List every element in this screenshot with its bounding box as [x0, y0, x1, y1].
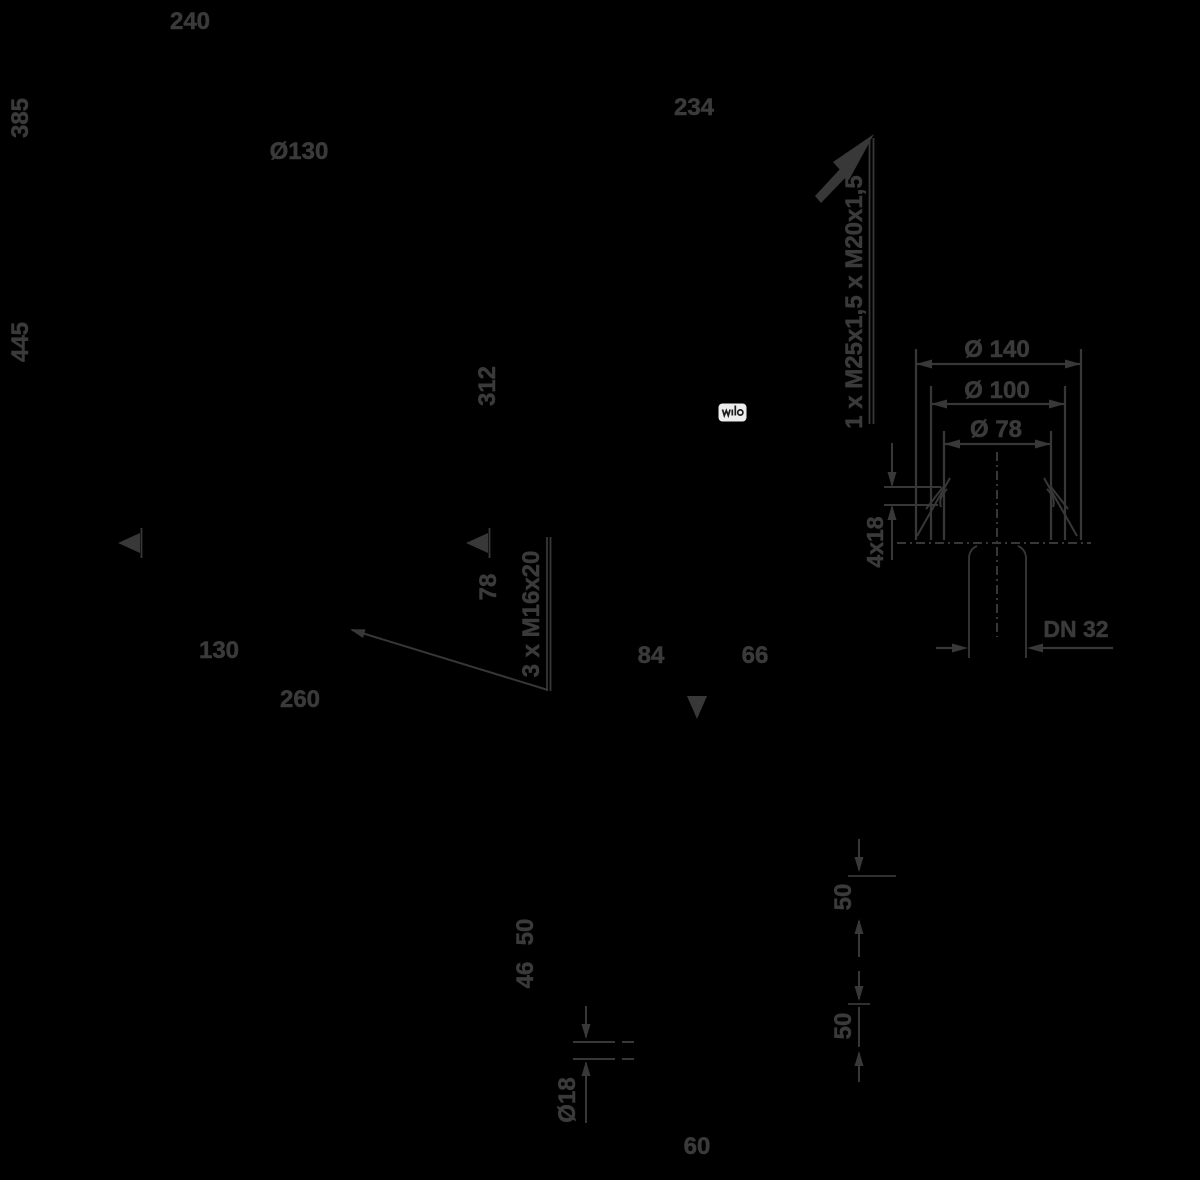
- svg-text:1 x M25x1,5 x M20x1,5: 1 x M25x1,5 x M20x1,5: [841, 175, 868, 429]
- svg-text:260: 260: [280, 686, 320, 713]
- svg-text:Ø 78: Ø 78: [970, 416, 1022, 443]
- svg-text:Ø18: Ø18: [554, 1077, 581, 1122]
- svg-text:50: 50: [830, 884, 857, 911]
- svg-text:78: 78: [475, 574, 502, 601]
- svg-text:3 x M16x20: 3 x M16x20: [518, 551, 545, 678]
- svg-text:DN 32: DN 32: [1043, 616, 1108, 642]
- svg-text:234: 234: [674, 94, 715, 121]
- svg-text:50: 50: [512, 919, 539, 946]
- svg-text:Ø 100: Ø 100: [964, 377, 1029, 404]
- svg-text:4x18: 4x18: [862, 516, 888, 567]
- svg-text:Ø130: Ø130: [270, 138, 329, 165]
- svg-text:240: 240: [170, 8, 210, 35]
- svg-text:66: 66: [742, 642, 769, 669]
- svg-text:445: 445: [7, 322, 34, 362]
- svg-text:130: 130: [199, 637, 239, 664]
- svg-text:385: 385: [7, 98, 34, 138]
- svg-text:50: 50: [830, 1013, 857, 1040]
- svg-text:46: 46: [512, 962, 539, 989]
- svg-text:60: 60: [684, 1133, 711, 1160]
- svg-text:312: 312: [474, 366, 501, 406]
- svg-text:Ø 140: Ø 140: [964, 336, 1029, 363]
- svg-text:84: 84: [638, 642, 665, 669]
